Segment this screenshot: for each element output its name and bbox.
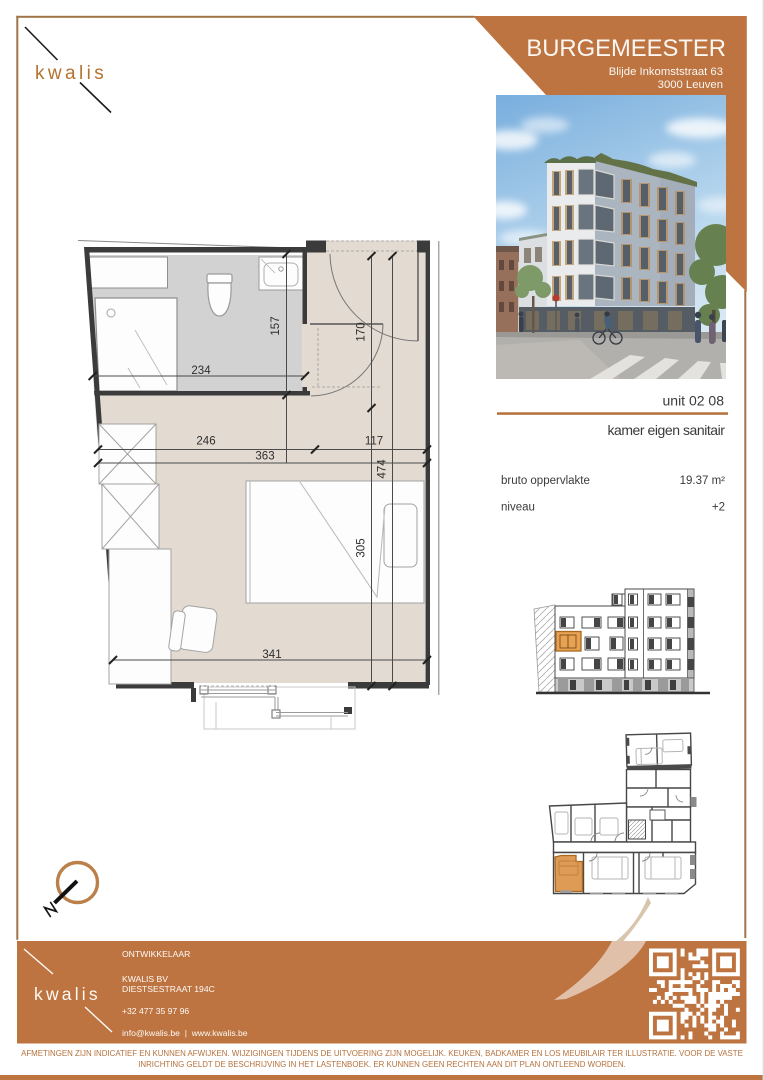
- svg-text:DIESTSESTRAAT 194C: DIESTSESTRAAT 194C: [122, 984, 215, 994]
- svg-text:+2: +2: [712, 502, 725, 514]
- svg-text:kamer eigen sanitair: kamer eigen sanitair: [607, 422, 725, 438]
- svg-text:kwalis: kwalis: [34, 984, 101, 1004]
- svg-text:INRICHTING GELDT DE BESCHRIJVI: INRICHTING GELDT DE BESCHRIJVING IN HET …: [138, 1060, 626, 1069]
- svg-text:+32 477 35 97 96: +32 477 35 97 96: [122, 1006, 189, 1016]
- svg-text:117: 117: [365, 436, 383, 448]
- svg-text:niveau: niveau: [501, 502, 535, 514]
- svg-text:341: 341: [262, 649, 281, 661]
- svg-text:ONTWIKKELAAR: ONTWIKKELAAR: [122, 949, 190, 959]
- svg-text:305: 305: [356, 538, 368, 557]
- svg-text:bruto oppervlakte: bruto oppervlakte: [501, 475, 590, 487]
- svg-text:3000 Leuven: 3000 Leuven: [658, 79, 723, 91]
- svg-text:kwalis: kwalis: [35, 63, 107, 84]
- svg-text:AFMETINGEN ZIJN INDICATIEF EN: AFMETINGEN ZIJN INDICATIEF EN KUNNEN AFW…: [21, 1049, 743, 1058]
- svg-text:info@kwalis.be | www.kwalis.: info@kwalis.be | www.kwalis.be: [122, 1028, 248, 1038]
- svg-text:363: 363: [255, 451, 274, 463]
- svg-text:unit 02 08: unit 02 08: [663, 393, 725, 409]
- svg-text:170: 170: [356, 322, 368, 341]
- svg-text:246: 246: [196, 436, 215, 448]
- svg-text:BURGEMEESTER: BURGEMEESTER: [526, 35, 726, 62]
- svg-text:234: 234: [191, 365, 211, 377]
- svg-text:19.37 m²: 19.37 m²: [680, 475, 726, 487]
- svg-text:474: 474: [377, 459, 389, 479]
- svg-text:KWALIS BV: KWALIS BV: [122, 974, 168, 984]
- svg-text:Blijde Inkomststraat 63: Blijde Inkomststraat 63: [609, 66, 723, 78]
- svg-text:157: 157: [270, 316, 282, 335]
